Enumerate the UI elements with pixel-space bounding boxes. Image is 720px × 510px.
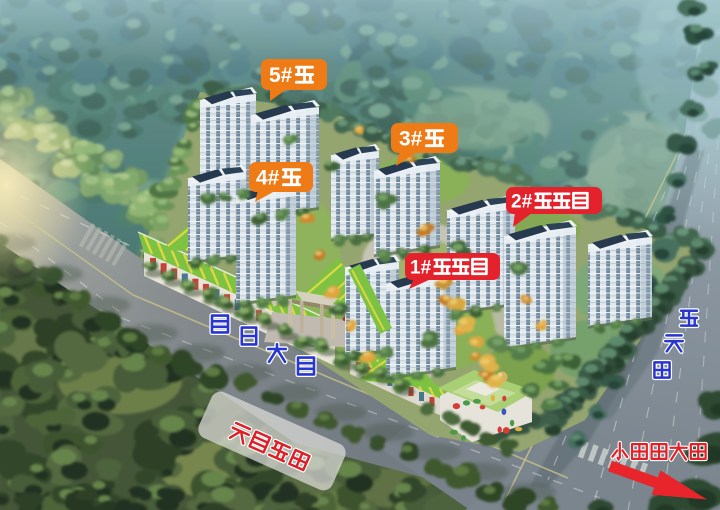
svg-text:5#: 5# (269, 64, 293, 87)
svg-text:1#: 1# (410, 257, 432, 278)
svg-text:3#: 3# (399, 128, 423, 151)
svg-text:4#: 4# (256, 167, 280, 190)
svg-text:2#: 2# (511, 191, 533, 212)
